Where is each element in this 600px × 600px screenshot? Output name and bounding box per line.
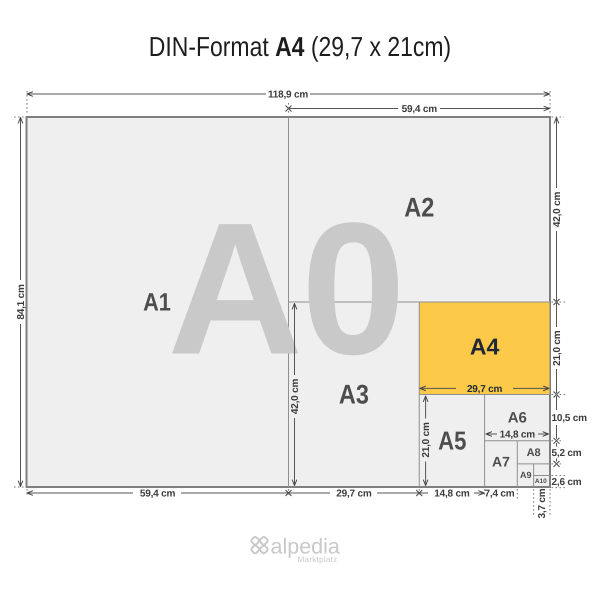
svg-text:10,5 cm: 10,5 cm [552, 413, 588, 424]
svg-text:A10: A10 [535, 478, 547, 485]
svg-text:A8: A8 [527, 447, 541, 459]
svg-text:21,0 cm: 21,0 cm [421, 422, 432, 458]
svg-text:2,6 cm: 2,6 cm [552, 477, 582, 488]
svg-text:Marktplatz: Marktplatz [298, 555, 338, 564]
svg-text:A2: A2 [404, 193, 434, 223]
svg-text:DIN-Format A4 (29,7 x 21cm): DIN-Format A4 (29,7 x 21cm) [149, 31, 451, 62]
svg-text:A1: A1 [143, 289, 171, 317]
svg-text:42,0 cm: 42,0 cm [290, 379, 301, 415]
svg-text:14,8 cm: 14,8 cm [434, 489, 470, 500]
svg-text:A0: A0 [167, 184, 403, 394]
svg-text:5,2 cm: 5,2 cm [552, 448, 582, 459]
svg-text:42,0 cm: 42,0 cm [552, 192, 563, 228]
svg-text:14,8 cm: 14,8 cm [500, 429, 536, 440]
svg-text:A6: A6 [508, 410, 527, 427]
svg-text:59,4 cm: 59,4 cm [140, 489, 176, 500]
svg-text:118,9 cm: 118,9 cm [268, 90, 308, 101]
svg-text:A4: A4 [470, 334, 500, 360]
svg-text:84,1 cm: 84,1 cm [16, 284, 27, 320]
svg-text:3,7 cm: 3,7 cm [537, 488, 548, 518]
svg-text:29,7 cm: 29,7 cm [336, 489, 372, 500]
svg-text:A5: A5 [438, 426, 466, 456]
svg-text:A3: A3 [339, 380, 369, 410]
svg-text:A9: A9 [520, 470, 532, 480]
svg-text:29,7 cm: 29,7 cm [467, 384, 503, 395]
svg-text:7,4 cm: 7,4 cm [485, 489, 515, 500]
svg-text:21,0 cm: 21,0 cm [552, 330, 563, 366]
svg-text:59,4 cm: 59,4 cm [402, 104, 438, 115]
svg-text:A7: A7 [492, 454, 510, 470]
